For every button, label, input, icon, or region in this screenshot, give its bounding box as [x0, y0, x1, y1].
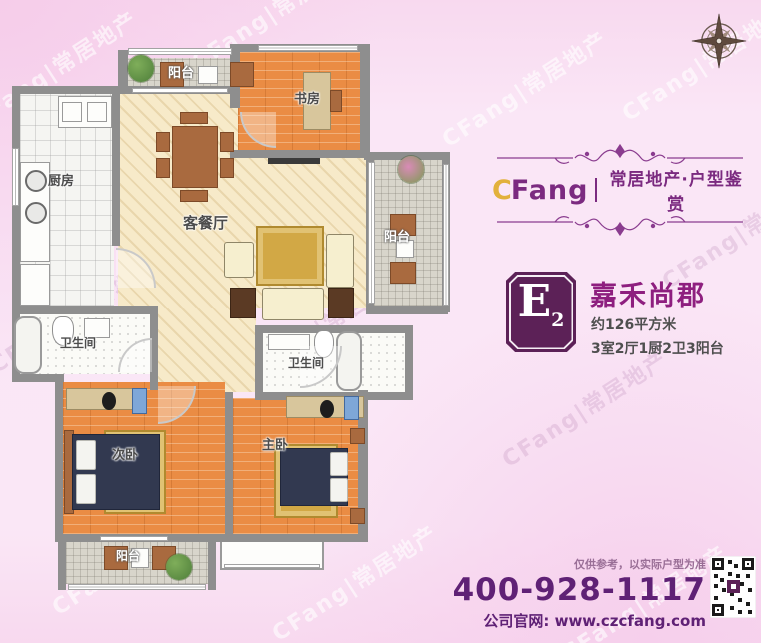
- label-balcony-top: 阳台: [168, 62, 194, 81]
- nightstand: [350, 428, 365, 444]
- label-bath-right: 卫生间: [288, 354, 324, 371]
- dining-chair: [156, 132, 170, 152]
- dining-chair: [180, 190, 208, 202]
- flourish-bottom-icon: [495, 208, 745, 238]
- bathtub: [14, 316, 42, 374]
- wall: [360, 44, 370, 158]
- wall: [12, 306, 158, 314]
- sliding-door: [132, 88, 228, 93]
- sink-basin: [62, 102, 82, 122]
- wall: [366, 306, 448, 314]
- dining-chair: [220, 132, 234, 152]
- label-living: 客餐厅: [183, 212, 228, 233]
- wall: [255, 325, 413, 333]
- watermark: CFang|常居地产: [435, 22, 614, 154]
- logo-text: Fang: [511, 175, 589, 206]
- plant: [398, 156, 424, 183]
- label-bath-left: 卫生间: [60, 334, 96, 351]
- side-table: [328, 288, 354, 318]
- logo-divider: [595, 178, 597, 202]
- qr-code: [710, 556, 756, 618]
- wall: [112, 94, 120, 246]
- sliding-door: [368, 162, 375, 304]
- listing-area: 约126平方米: [591, 314, 676, 334]
- pillow: [76, 474, 96, 504]
- dining-chair: [156, 158, 170, 178]
- website: 公司官网: www.czcfang.com: [440, 610, 706, 631]
- wall: [58, 534, 66, 590]
- sofa: [262, 288, 324, 320]
- side-table: [230, 288, 256, 318]
- desk-chair: [320, 400, 334, 418]
- label-kitchen: 厨房: [48, 170, 74, 189]
- wall: [225, 392, 233, 538]
- wardrobe: [132, 388, 147, 414]
- unit-type-badge: E2 户型: [506, 272, 576, 352]
- pillow: [76, 440, 96, 470]
- window: [12, 148, 19, 206]
- pillow: [330, 452, 348, 476]
- sliding-door: [100, 536, 168, 541]
- label-balcony-bottom: 阳台: [116, 547, 140, 564]
- balcony-chair: [230, 62, 254, 87]
- wall: [55, 374, 63, 542]
- loveseat: [326, 234, 354, 288]
- desk-chair: [102, 392, 116, 410]
- dining-table: [172, 126, 218, 188]
- tv: [268, 158, 320, 164]
- dining-chair: [220, 158, 234, 178]
- balcony-table: [198, 66, 218, 84]
- pillow: [330, 478, 348, 502]
- wardrobe: [344, 396, 359, 420]
- dining-chair: [180, 112, 208, 124]
- wall: [230, 150, 370, 158]
- kitchen-cabinet: [20, 264, 50, 306]
- window: [258, 45, 358, 51]
- label-bedroom-second: 次卧: [112, 444, 138, 463]
- stove-burner: [25, 202, 47, 224]
- living-rug: [256, 226, 324, 286]
- window: [224, 564, 320, 568]
- wall: [255, 325, 263, 400]
- disclaimer: 仅供参考，以实际户型为准: [470, 556, 706, 572]
- listing-name: 嘉禾尚郡: [590, 274, 706, 313]
- hallway: [156, 308, 256, 392]
- balcony-chair: [390, 262, 416, 284]
- bathtub: [336, 331, 362, 391]
- window: [128, 48, 232, 55]
- plant: [166, 554, 192, 580]
- label-balcony-right: 阳台: [384, 226, 410, 245]
- plant: [128, 55, 154, 82]
- window: [443, 164, 449, 306]
- badge-face: E2 户型: [511, 277, 572, 348]
- nightstand: [350, 508, 365, 524]
- phone-number: 400-928-1117: [440, 572, 706, 608]
- wall: [208, 534, 216, 590]
- listing-rooms: 3室2厅1厨2卫3阳台: [591, 338, 724, 358]
- logo-letter-c: C: [492, 175, 512, 206]
- study-chair: [330, 90, 342, 112]
- label-study: 书房: [294, 88, 320, 107]
- badge-number: 2: [551, 308, 564, 330]
- brand-block: C Fang 常居地产·户型鉴赏: [492, 142, 748, 238]
- armchair: [224, 242, 254, 278]
- wall: [225, 534, 366, 542]
- badge-border: E2 户型: [509, 275, 573, 349]
- stove-burner: [25, 170, 47, 192]
- brand-logo: C Fang 常居地产·户型鉴赏: [492, 172, 748, 208]
- badge-letter: E2: [511, 277, 572, 345]
- wall: [405, 325, 413, 400]
- watermark: CFang|常居地产: [495, 342, 674, 474]
- sink-basin: [87, 102, 107, 122]
- window: [68, 584, 206, 590]
- floorplan-poster: CFang|常居地产 CFang|常居地产 CFang|常居地产 CFang|常…: [0, 0, 761, 643]
- wall: [12, 86, 124, 94]
- label-bedroom-master: 主卧: [262, 434, 288, 453]
- badge-caption: 户型: [520, 346, 572, 361]
- compass-rose-icon: [690, 12, 748, 70]
